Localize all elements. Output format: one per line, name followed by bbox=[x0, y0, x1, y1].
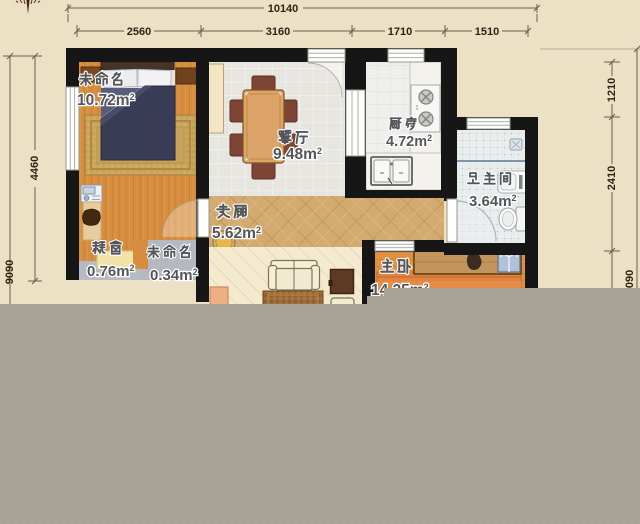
svg-text:3.64m2: 3.64m2 bbox=[469, 193, 517, 210]
svg-text:9090: 9090 bbox=[4, 260, 16, 284]
svg-text:9.48m2: 9.48m2 bbox=[273, 146, 322, 163]
svg-text:4460: 4460 bbox=[29, 156, 41, 180]
svg-text:0.34m2: 0.34m2 bbox=[150, 267, 198, 284]
svg-text:1210: 1210 bbox=[606, 78, 618, 102]
svg-text:2410: 2410 bbox=[606, 166, 618, 190]
svg-text:1510: 1510 bbox=[475, 26, 499, 38]
svg-text:2560: 2560 bbox=[127, 26, 151, 38]
svg-text:4.72m2: 4.72m2 bbox=[386, 133, 432, 150]
svg-text:0.76m2: 0.76m2 bbox=[87, 263, 135, 280]
svg-text:1710: 1710 bbox=[388, 26, 412, 38]
svg-text:10.72m2: 10.72m2 bbox=[77, 92, 135, 109]
svg-text:10140: 10140 bbox=[268, 3, 299, 15]
svg-text:3160: 3160 bbox=[266, 26, 290, 38]
svg-text:5.62m2: 5.62m2 bbox=[212, 225, 261, 242]
